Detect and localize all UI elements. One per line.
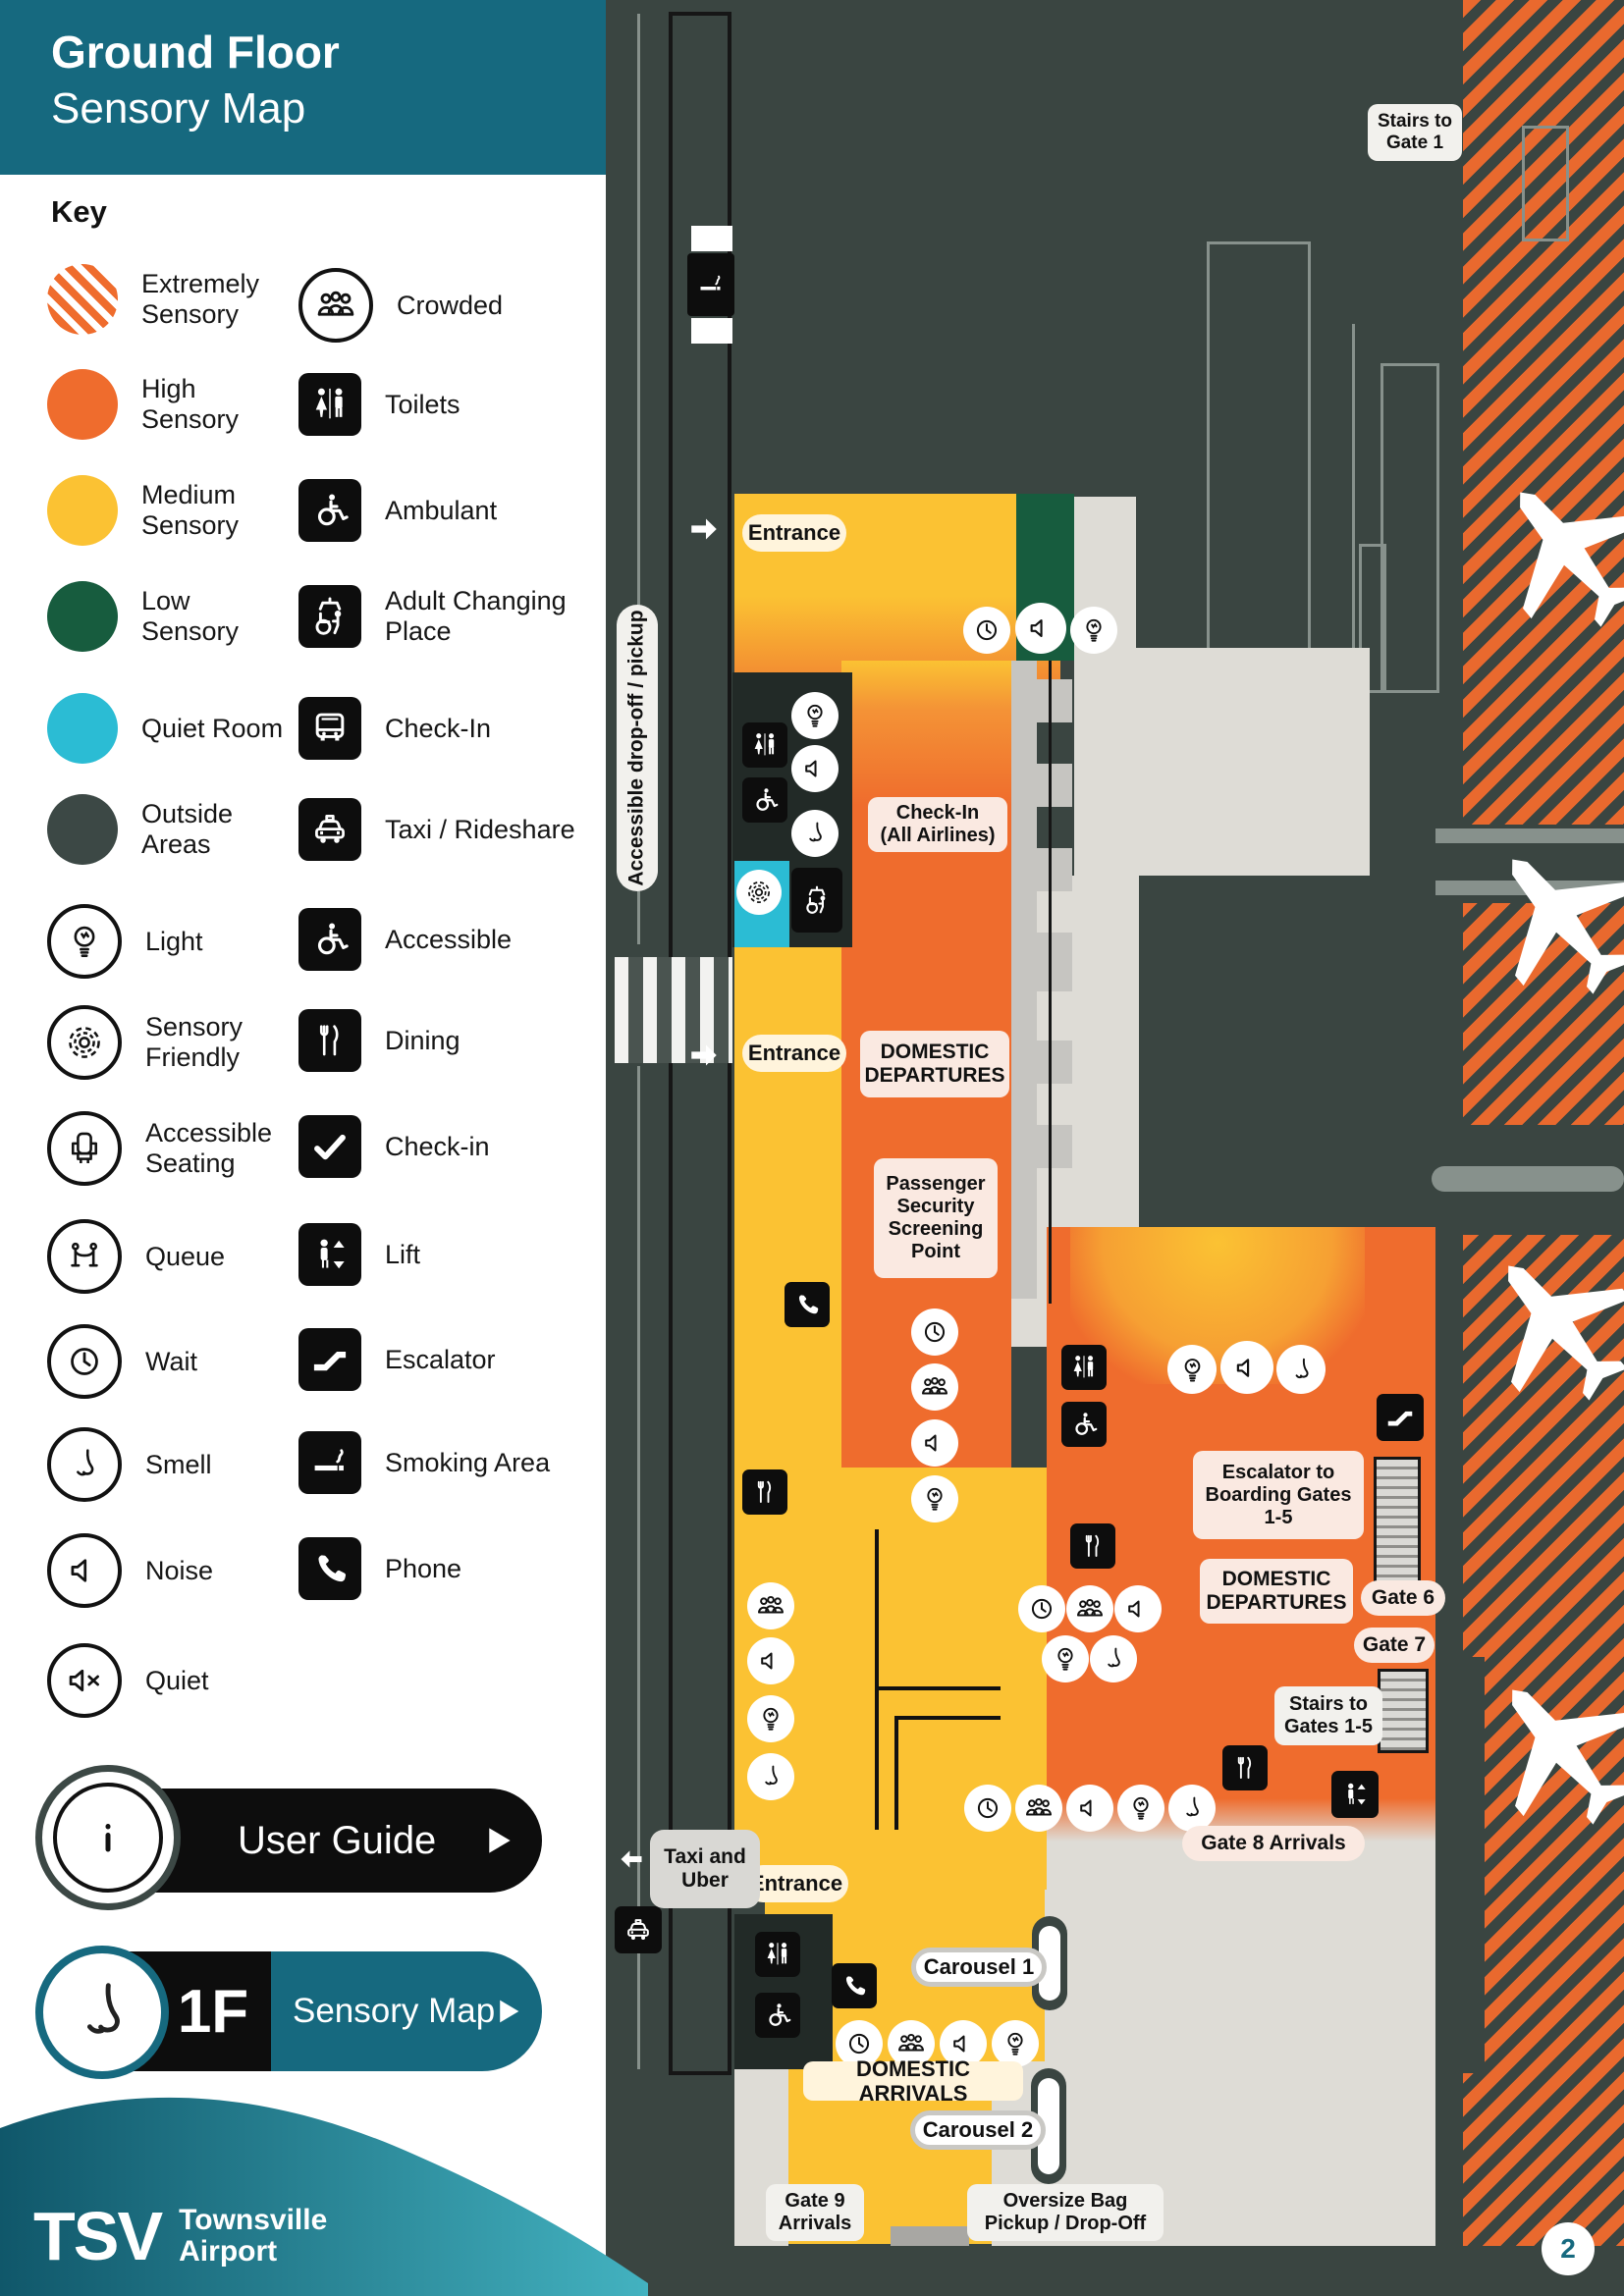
toilets-icon (742, 722, 787, 768)
toilets-icon (1061, 1345, 1107, 1390)
wait-icon (1018, 1585, 1065, 1632)
accessible-dropoff-text: Accessible drop-off / pickup (625, 610, 649, 885)
key-label: Smoking Area (385, 1448, 550, 1478)
key-label: Noise (145, 1556, 213, 1586)
key-label: Escalator (385, 1345, 496, 1375)
toilets-icon (755, 1932, 800, 1977)
check-icon (298, 1115, 361, 1178)
key-row: Toilets (298, 373, 593, 436)
entrance-arrow-icon (681, 1039, 727, 1072)
label-domestic-arrivals: DOMESTIC ARRIVALS (803, 2061, 1023, 2101)
label-checkin-all: Check-In (All Airlines) (868, 797, 1007, 852)
key-row: Check-in (298, 1115, 593, 1178)
key-row: Smell (47, 1427, 293, 1502)
key-row: Adult Changing Place (298, 585, 593, 648)
speaker-x-icon (47, 1643, 122, 1718)
key-row: Lift (298, 1223, 593, 1286)
outside-areas-swatch (47, 794, 118, 865)
label-gate6: Gate 6 (1361, 1580, 1445, 1616)
key-row: Outside Areas (47, 794, 293, 865)
key-label: Queue (145, 1242, 225, 1272)
key-row: Crowded (298, 268, 593, 343)
crowded-icon (747, 1582, 794, 1629)
adult-change-icon (791, 868, 842, 933)
light-icon (1117, 1785, 1164, 1832)
key-row: Light (47, 904, 293, 979)
checkin-desk-line (1049, 661, 1052, 1304)
phone-icon (298, 1537, 361, 1600)
seat-icon (47, 1111, 122, 1186)
key-label: Lift (385, 1240, 420, 1270)
key-row: Low Sensory (47, 581, 293, 652)
label-entrance-2: Entrance (742, 1035, 846, 1072)
key-label: Adult Changing Place (385, 586, 593, 647)
light-icon (1070, 607, 1117, 654)
crowded-icon (1015, 1785, 1062, 1832)
accessible-icon (1061, 1402, 1107, 1447)
key-label: Light (145, 927, 203, 957)
key-label: Low Sensory (141, 586, 293, 647)
airport-name: Townsville Airport (179, 2205, 327, 2269)
floor-map-box: Sensory Map (271, 1951, 542, 2071)
smoking-icon (298, 1431, 361, 1494)
nose-icon (47, 1427, 122, 1502)
key-label: Check-in (385, 1132, 490, 1162)
queue-line (875, 1529, 879, 1830)
light-icon (911, 1475, 958, 1522)
zone-queue-medium (841, 1468, 1047, 1890)
light-icon (747, 1695, 794, 1742)
wait-icon (911, 1308, 958, 1356)
key-row: Accessible (298, 908, 593, 971)
user-guide-label: User Guide (238, 1819, 436, 1863)
queue-icon (47, 1219, 122, 1294)
label-stairs-gates15: Stairs to Gates 1-5 (1274, 1686, 1382, 1745)
key-row: High Sensory (47, 369, 293, 440)
lift-icon (1331, 1771, 1379, 1818)
key-label: Dining (385, 1026, 460, 1056)
high-sensory-swatch (47, 369, 118, 440)
gate67-bridge (1432, 1166, 1624, 1192)
key-label: Smell (145, 1450, 212, 1480)
label-accessible-dropoff: Accessible drop-off / pickup (617, 605, 658, 891)
taxi-icon (615, 1906, 662, 1953)
label-gate9: Gate 9 Arrivals (766, 2184, 864, 2241)
noise-icon (791, 745, 839, 792)
light-icon (1167, 1345, 1217, 1394)
checkin-desk (1037, 1041, 1072, 1084)
key-label: Sensory Friendly (145, 1012, 293, 1073)
speaker-icon (47, 1533, 122, 1608)
page-title: Ground Floor (51, 26, 340, 79)
key-row: Check-In (298, 697, 593, 760)
key-title: Key (51, 194, 107, 230)
info-icon (35, 1765, 181, 1910)
airport-name-line1: Townsville (179, 2205, 327, 2236)
key-label: Crowded (397, 291, 503, 321)
chevron-right-icon (491, 1995, 524, 2028)
key-label: Check-In (385, 714, 491, 744)
accessible-icon (755, 1993, 800, 2038)
map-bottom-margin (606, 2246, 1624, 2296)
dining-icon (1070, 1523, 1115, 1569)
noise-icon (1015, 603, 1066, 654)
quiet-room-swatch (47, 693, 118, 764)
label-gate7: Gate 7 (1354, 1628, 1435, 1663)
oversize-gray-tab (891, 2226, 969, 2246)
logo-text: TSV (33, 2197, 161, 2275)
smoking-bay-pad (691, 226, 732, 251)
key-row: Medium Sensory (47, 475, 293, 546)
accessible-icon (742, 777, 787, 823)
key-row: Escalator (298, 1328, 593, 1391)
queue-line (894, 1716, 898, 1830)
airport-name-line2: Airport (179, 2236, 327, 2268)
queue-line (894, 1716, 1001, 1720)
floor-code: 1F (178, 1977, 248, 2047)
floor-map-label: Sensory Map (293, 1992, 495, 2031)
light-icon (791, 692, 839, 739)
checkin-desk (1037, 679, 1072, 722)
noise-icon (1220, 1341, 1273, 1394)
noise-icon (1066, 1785, 1113, 1832)
checkin-desk (1037, 933, 1072, 991)
key-label: Accessible Seating (145, 1118, 293, 1179)
label-carousel2: Carousel 2 (910, 2110, 1046, 2150)
extremely-sensory-swatch (47, 264, 118, 335)
smoking-bay-pad (691, 318, 732, 344)
clock-icon (47, 1324, 122, 1399)
label-stairs-gate1: Stairs to Gate 1 (1368, 104, 1462, 161)
wheelchair-icon (298, 479, 361, 542)
stairs-gate1-outline (1380, 363, 1439, 693)
key-row: Quiet Room (47, 693, 293, 764)
smell-icon (1168, 1785, 1216, 1832)
page: Stairs to Gate 1 Entrance Entrance Entra… (0, 0, 1624, 2296)
key-row: Accessible Seating (47, 1111, 293, 1186)
key-row: Smoking Area (298, 1431, 593, 1494)
airport-logo: TSV Townsville Airport (33, 2197, 327, 2275)
label-escalator-gates: Escalator to Boarding Gates 1-5 (1193, 1451, 1364, 1539)
noise-icon (911, 1419, 958, 1467)
key-label: Wait (145, 1347, 197, 1377)
key-row: Quiet (47, 1643, 293, 1718)
key-label: High Sensory (141, 374, 293, 435)
floor (1136, 648, 1370, 876)
header-banner: Ground Floor Sensory Map (0, 0, 606, 175)
key-row: Dining (298, 1009, 593, 1072)
smoking-area-icon (687, 253, 734, 316)
crowded-icon (1066, 1585, 1113, 1632)
key-label: Outside Areas (141, 799, 293, 860)
label-taxi-uber: Taxi and Uber (650, 1830, 760, 1908)
medium-sensory-swatch (47, 475, 118, 546)
phone-icon (785, 1282, 830, 1327)
chevron-right-icon (479, 1822, 516, 1859)
page-subtitle: Sensory Map (51, 84, 305, 133)
key-label: Phone (385, 1554, 461, 1584)
escalator-icon (298, 1328, 361, 1391)
noise-icon (747, 1637, 794, 1684)
page-number-badge: 2 (1542, 2222, 1595, 2275)
label-domestic-departures-1: DOMESTIC DEPARTURES (860, 1031, 1009, 1097)
phone-icon (832, 1963, 877, 2008)
label-domestic-departures-2: DOMESTIC DEPARTURES (1200, 1559, 1353, 1624)
key-label: Quiet Room (141, 714, 283, 744)
entrance-arrow-icon (681, 512, 727, 546)
dining-icon (298, 1009, 361, 1072)
sensory-friendly-icon (47, 1005, 122, 1080)
bus-icon (298, 697, 361, 760)
key-row: Extremely Sensory (47, 264, 293, 335)
key-label: Accessible (385, 925, 512, 955)
key-row: Queue (47, 1219, 293, 1294)
stairs-shaft (1378, 1669, 1429, 1753)
dining-icon (742, 1469, 787, 1515)
wheelchair-icon (298, 908, 361, 971)
label-oversize-bag: Oversize Bag Pickup / Drop-Off (967, 2184, 1164, 2241)
taxi-icon (298, 798, 361, 861)
toilets-icon (298, 373, 361, 436)
sensory-friendly-icon (736, 870, 782, 915)
building-outline-small (1522, 126, 1569, 241)
key-row: Wait (47, 1324, 293, 1399)
user-guide-button[interactable]: User Guide (35, 1765, 542, 1916)
key-label: Medium Sensory (141, 480, 293, 541)
bulb-icon (47, 904, 122, 979)
key-label: Ambulant (385, 496, 497, 526)
taxi-arrow-icon (613, 1845, 650, 1873)
noise-icon (1114, 1585, 1162, 1632)
page-number: 2 (1560, 2233, 1576, 2265)
dining-icon (1222, 1745, 1268, 1790)
label-security: Passenger Security Screening Point (874, 1158, 998, 1278)
key-label: Toilets (385, 390, 460, 420)
key-row: Ambulant (298, 479, 593, 542)
adult-change-icon (298, 585, 361, 648)
key-label: Taxi / Rideshare (385, 815, 575, 845)
label-entrance-1: Entrance (742, 514, 846, 552)
floor (1074, 497, 1136, 876)
checkin-desk (1037, 848, 1072, 891)
smell-icon (1276, 1345, 1326, 1394)
wait-icon (964, 1785, 1011, 1832)
people-icon (298, 268, 373, 343)
checkin-desk (1037, 1125, 1072, 1168)
label-gate8: Gate 8 Arrivals (1182, 1826, 1365, 1861)
smell-icon (1090, 1635, 1137, 1682)
smell-icon (747, 1753, 794, 1800)
key-label: Quiet (145, 1666, 209, 1696)
key-row: Noise (47, 1533, 293, 1608)
wait-icon (963, 607, 1010, 654)
escalator-icon (1377, 1394, 1424, 1441)
key-row: Phone (298, 1537, 593, 1600)
smell-icon (791, 810, 839, 857)
crowded-icon (911, 1363, 958, 1411)
key-label: Extremely Sensory (141, 269, 293, 330)
lift-icon (298, 1223, 361, 1286)
queue-line (875, 1686, 1001, 1690)
label-carousel1: Carousel 1 (911, 1948, 1047, 1987)
low-sensory-swatch (47, 581, 118, 652)
key-row: Sensory Friendly (47, 1005, 293, 1080)
key-row: Taxi / Rideshare (298, 798, 593, 861)
checkin-desks-bar (1011, 661, 1037, 1299)
checkin-desk (1037, 764, 1072, 807)
light-icon (1042, 1635, 1089, 1682)
